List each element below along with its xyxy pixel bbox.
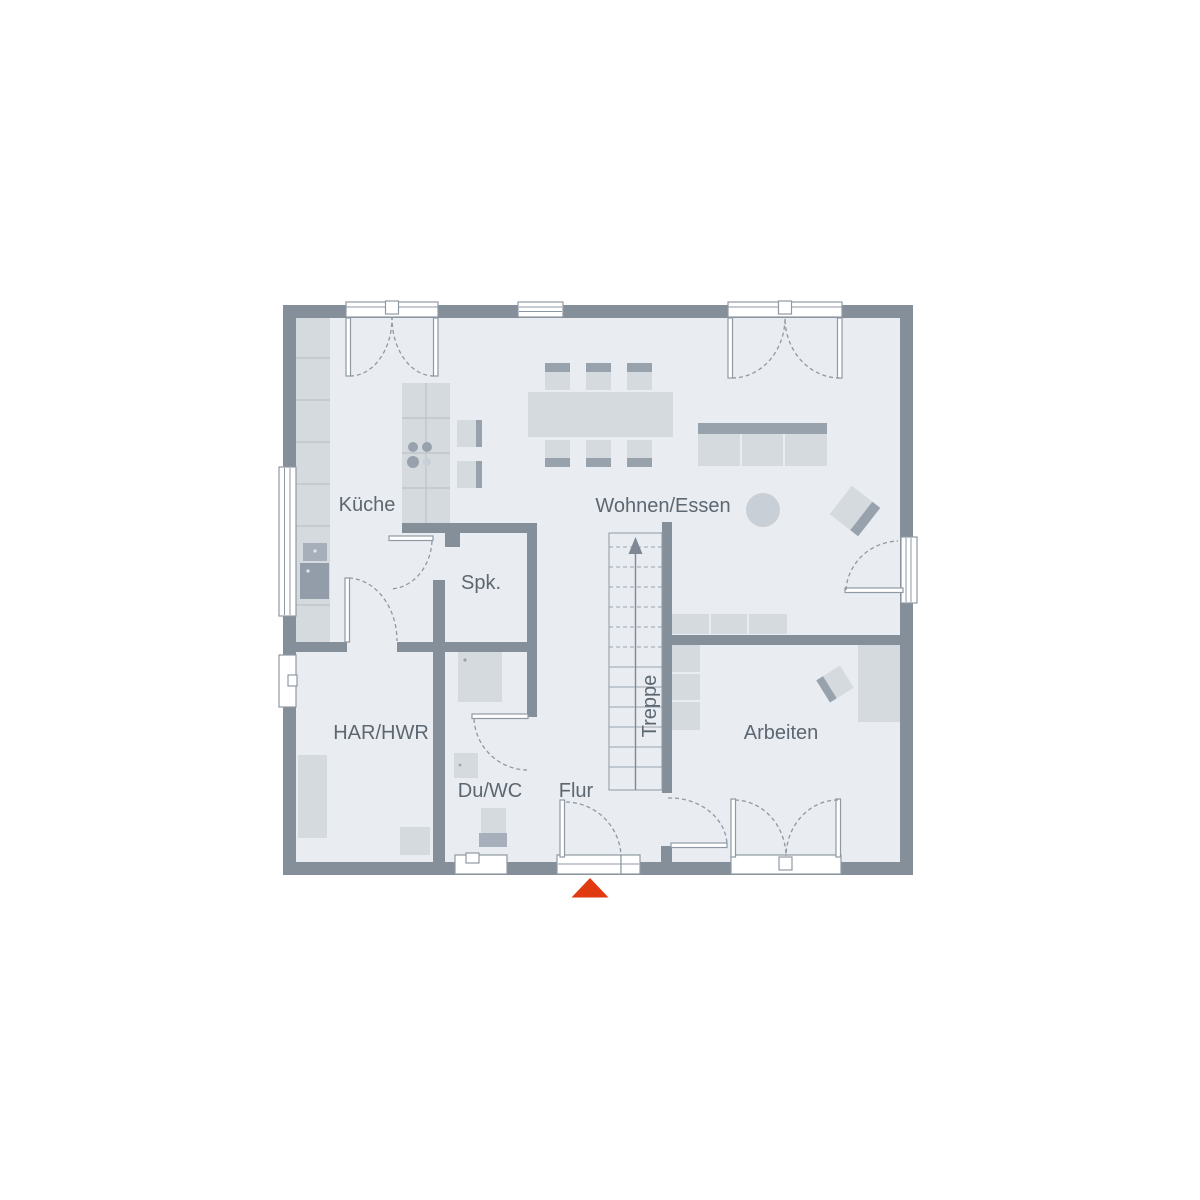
wall-har-top-left bbox=[283, 642, 347, 652]
wall-har-top-right bbox=[397, 642, 537, 652]
round-rug bbox=[746, 493, 780, 527]
room-label-arbeiten: Arbeiten bbox=[744, 722, 819, 744]
outer-walls bbox=[283, 305, 913, 875]
shower-head-icon bbox=[463, 658, 466, 661]
dining-set bbox=[528, 363, 673, 467]
window-bath-bottom bbox=[455, 853, 507, 874]
window-handle-icon bbox=[288, 675, 297, 686]
wall-stairs-right bbox=[662, 522, 672, 793]
window-utility-left bbox=[279, 655, 297, 707]
floor-plan-drawing: Küche Wohnen/Essen Spk. HAR/HWR Du/WC Fl… bbox=[0, 0, 1200, 1200]
sofa bbox=[698, 423, 827, 466]
door-handle-icon bbox=[779, 301, 792, 314]
wall-spk-right bbox=[527, 523, 537, 717]
door-handle-icon bbox=[779, 857, 792, 870]
window-kitchen-left bbox=[279, 467, 296, 616]
toilet bbox=[479, 808, 507, 847]
dining-chair bbox=[586, 440, 611, 467]
dining-chair bbox=[545, 363, 570, 390]
dining-chair bbox=[545, 440, 570, 467]
office-shelf bbox=[672, 645, 700, 730]
room-label-kueche: Küche bbox=[339, 494, 396, 516]
room-label-treppe: Treppe bbox=[639, 675, 661, 738]
dining-chair bbox=[627, 440, 652, 467]
sink-knob-icon bbox=[313, 549, 316, 552]
window-top bbox=[518, 302, 563, 317]
dining-chair bbox=[627, 363, 652, 390]
dining-table bbox=[528, 392, 673, 437]
washbasin bbox=[454, 753, 478, 778]
desk bbox=[858, 645, 900, 722]
room-label-spk: Spk. bbox=[461, 572, 501, 594]
wall-wohnen-arbeiten bbox=[672, 635, 900, 645]
window-handle-icon bbox=[466, 853, 479, 863]
bar-stool bbox=[457, 461, 482, 488]
wall-flur-stub bbox=[661, 846, 672, 862]
door-handle-icon bbox=[386, 301, 399, 314]
basin-drain-icon bbox=[459, 764, 462, 767]
entrance-arrow-icon bbox=[572, 878, 609, 898]
room-label-har-hwr: HAR/HWR bbox=[333, 722, 429, 744]
wall-spk-stub bbox=[445, 533, 460, 547]
wall-har-duwc-divider bbox=[433, 580, 445, 862]
utility-appliance bbox=[400, 827, 430, 855]
wall-spk-top bbox=[402, 523, 537, 533]
bar-stool bbox=[457, 420, 482, 447]
oven-knob-icon bbox=[306, 569, 309, 572]
room-label-wohnen-essen: Wohnen/Essen bbox=[595, 495, 730, 517]
kitchen-oven bbox=[300, 563, 329, 599]
dining-chair bbox=[586, 363, 611, 390]
room-label-flur: Flur bbox=[559, 780, 594, 802]
utility-cabinet bbox=[298, 755, 327, 838]
sideboard bbox=[672, 614, 787, 634]
floor-plan-canvas: Küche Wohnen/Essen Spk. HAR/HWR Du/WC Fl… bbox=[0, 0, 1200, 1200]
room-label-du-wc: Du/WC bbox=[458, 780, 522, 802]
